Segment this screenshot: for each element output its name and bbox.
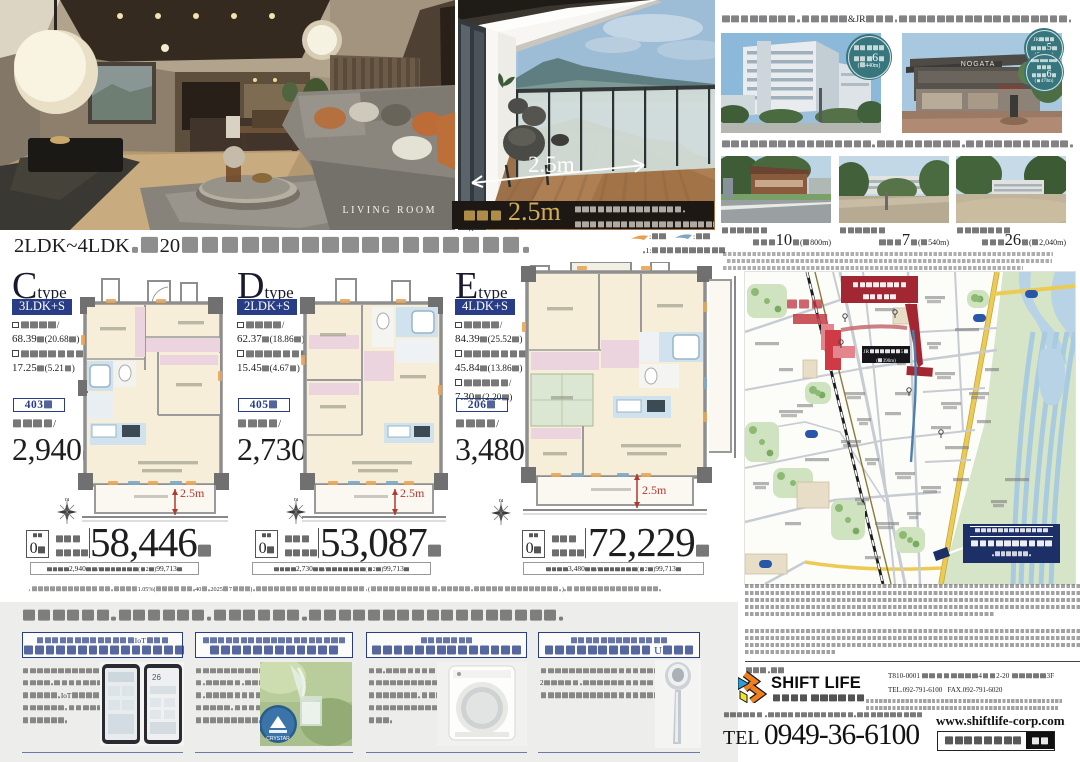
svg-text:NOGATA: NOGATA: [961, 61, 996, 68]
svg-text:N: N: [294, 498, 298, 503]
svg-text:2.5m: 2.5m: [528, 152, 575, 177]
svg-text:N: N: [499, 499, 503, 504]
svg-text:2.5m: 2.5m: [642, 483, 667, 497]
svg-text:2.5m: 2.5m: [400, 486, 425, 500]
svg-text:N: N: [65, 498, 69, 503]
svg-text:CRYSTAR: CRYSTAR: [266, 736, 290, 742]
svg-text:26: 26: [152, 673, 161, 682]
svg-text:LIVING ROOM: LIVING ROOM: [343, 205, 437, 216]
svg-text:2.5m: 2.5m: [180, 486, 205, 500]
